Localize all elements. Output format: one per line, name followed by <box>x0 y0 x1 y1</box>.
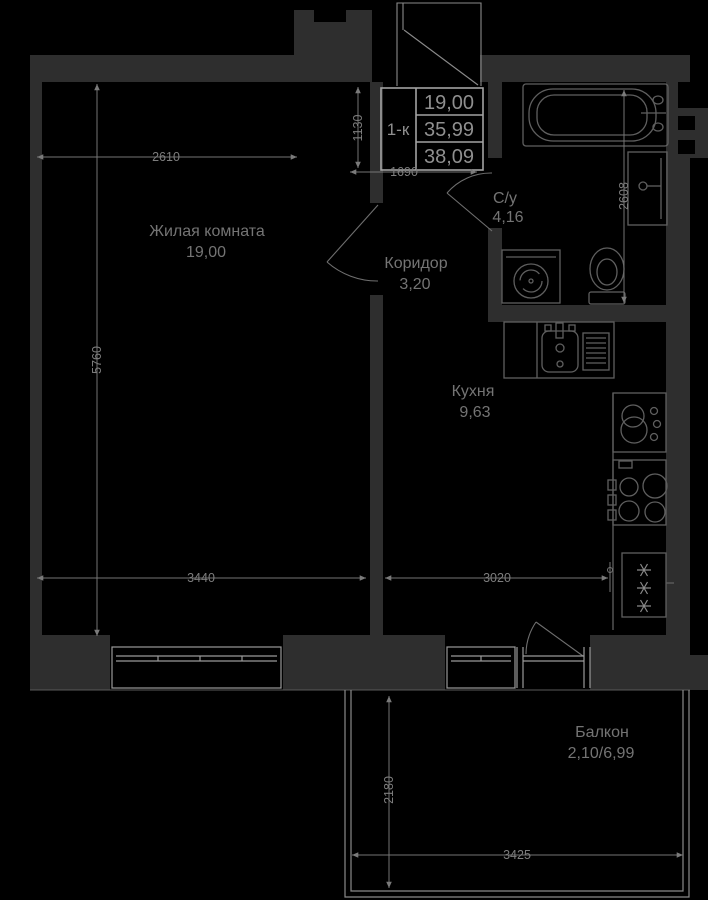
washing-machine <box>502 250 560 303</box>
dim-living-top-width: 2610 <box>37 150 297 164</box>
living-room-window <box>112 647 281 688</box>
balcony-railing <box>345 690 689 897</box>
living-room-label: Жилая комната <box>149 223 265 240</box>
floor-plan-svg: 1-к 19,00 35,99 38,09 <box>0 0 708 900</box>
cooktop <box>608 460 667 525</box>
kitchen-window <box>447 647 515 688</box>
balcony-label: Балкон <box>575 724 629 741</box>
dim-living-bottom-width: 3440 <box>37 571 366 585</box>
dim-balcony-width: 3425 <box>352 848 683 862</box>
corridor-area: 3,20 <box>399 276 430 293</box>
corridor-label: Коридор <box>384 255 447 272</box>
bathroom-area: 4,16 <box>492 209 523 226</box>
kitchen-appliance-column <box>608 393 674 630</box>
drainboard <box>583 333 609 370</box>
info-table: 1-к 19,00 35,99 38,09 <box>381 88 483 170</box>
bathroom-label: С/у <box>493 190 517 207</box>
balcony-area: 2,10/6,99 <box>568 745 635 762</box>
dim-living-left-height: 5760 <box>90 84 104 636</box>
stairwell-outline <box>397 3 481 86</box>
dim-text-3425: 3425 <box>503 848 531 862</box>
frost-asterisk <box>637 600 651 612</box>
doors <box>327 173 583 656</box>
kitchen-double-hob <box>613 393 666 452</box>
living-area-value: 19,00 <box>424 92 474 114</box>
total-area-value: 38,09 <box>424 146 474 168</box>
dim-text-2610: 2610 <box>152 150 180 164</box>
dim-text-2180: 2180 <box>382 776 396 804</box>
kitchen-area: 9,63 <box>459 404 490 421</box>
washbasin <box>628 152 667 225</box>
dim-kitchen-bottom-width: 3020 <box>385 562 613 592</box>
dimensions: 2610 5760 1130 1690 2608 3440 3020 <box>37 84 683 888</box>
dim-balcony-depth: 2180 <box>382 696 396 888</box>
balcony-door-swing <box>526 622 583 656</box>
kitchen-sink-counter <box>504 322 614 378</box>
floor-plan: 1-к 19,00 35,99 38,09 <box>0 0 708 900</box>
dim-text-3440: 3440 <box>187 571 215 585</box>
kitchen-label: Кухня <box>452 383 495 400</box>
entry-door-leaf <box>404 30 478 85</box>
toilet <box>589 248 625 304</box>
walls <box>30 10 708 690</box>
bathtub <box>523 84 668 146</box>
apartment-area-value: 35,99 <box>424 119 474 141</box>
dim-text-1130: 1130 <box>351 115 365 142</box>
frost-asterisk <box>637 564 651 576</box>
dim-text-2608: 2608 <box>617 182 631 210</box>
bathroom-door <box>447 173 492 231</box>
frost-asterisk <box>637 582 651 594</box>
living-room-door <box>327 205 378 281</box>
dim-text-1690: 1690 <box>390 165 418 179</box>
dim-text-5760: 5760 <box>90 346 104 374</box>
dim-bathroom-height: 2608 <box>617 90 631 303</box>
dim-hall-height: 1130 <box>351 87 365 168</box>
apartment-type-label: 1-к <box>387 120 410 139</box>
refrigerator <box>622 553 674 617</box>
living-room-area: 19,00 <box>186 244 226 261</box>
dim-text-3020: 3020 <box>483 571 511 585</box>
